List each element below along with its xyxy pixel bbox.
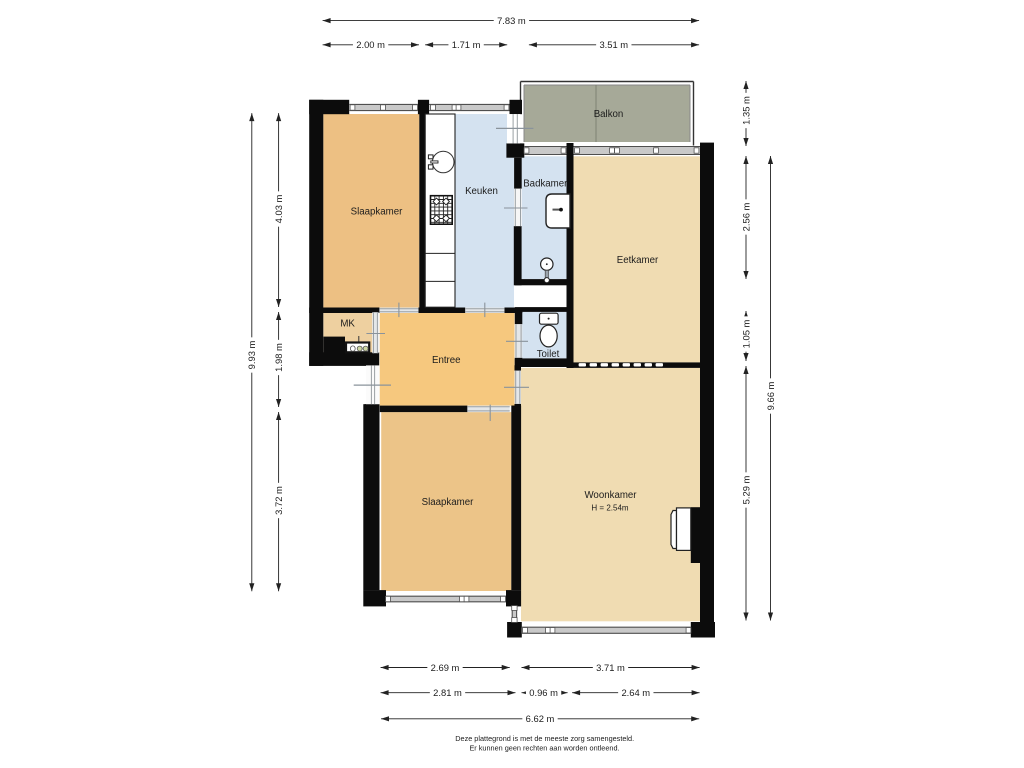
svg-text:Toilet: Toilet [537, 349, 560, 360]
svg-text:7.83 m: 7.83 m [497, 15, 526, 26]
svg-text:Balkon: Balkon [594, 109, 624, 120]
svg-text:1.71 m: 1.71 m [452, 39, 481, 50]
svg-text:1.05 m: 1.05 m [740, 319, 751, 348]
svg-text:2.56 m: 2.56 m [740, 202, 751, 231]
svg-text:Badkamer: Badkamer [523, 179, 568, 190]
svg-text:5.29 m: 5.29 m [740, 475, 751, 504]
svg-text:4.03 m: 4.03 m [273, 194, 284, 223]
svg-text:2.69 m: 2.69 m [431, 662, 460, 673]
svg-text:H = 2.54m: H = 2.54m [591, 503, 628, 512]
svg-text:9.66 m: 9.66 m [765, 381, 776, 410]
svg-text:0.96 m: 0.96 m [529, 687, 558, 698]
svg-text:2.81 m: 2.81 m [433, 687, 462, 698]
svg-text:3.51 m: 3.51 m [599, 39, 628, 50]
svg-text:Entree: Entree [432, 355, 461, 366]
svg-text:MK: MK [340, 318, 355, 329]
svg-text:Eetkamer: Eetkamer [617, 255, 659, 266]
svg-text:Slaapkamer: Slaapkamer [422, 497, 474, 508]
svg-text:2.64 m: 2.64 m [621, 687, 650, 698]
svg-text:Slaapkamer: Slaapkamer [351, 206, 403, 217]
svg-text:1.35 m: 1.35 m [740, 96, 751, 125]
svg-text:6.62 m: 6.62 m [526, 713, 555, 724]
svg-text:1.98 m: 1.98 m [273, 343, 284, 372]
svg-text:3.72 m: 3.72 m [273, 486, 284, 515]
svg-text:Er kunnen geen rechten aan wor: Er kunnen geen rechten aan worden ontlee… [469, 744, 619, 753]
svg-text:Keuken: Keuken [465, 186, 498, 197]
svg-text:Deze plattegrond is met de mee: Deze plattegrond is met de meeste zorg s… [455, 734, 634, 743]
svg-text:Woonkamer: Woonkamer [584, 490, 637, 501]
svg-text:2.00 m: 2.00 m [356, 39, 385, 50]
svg-text:3.71 m: 3.71 m [596, 662, 625, 673]
svg-text:9.93 m: 9.93 m [246, 340, 257, 369]
